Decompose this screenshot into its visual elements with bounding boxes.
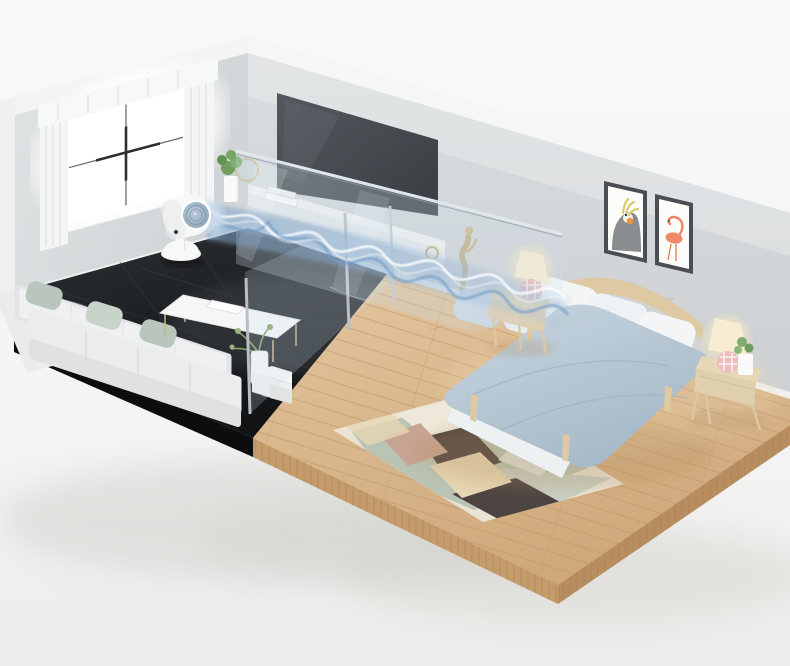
fan-power-button: [174, 230, 178, 234]
wall-art-flamingo: [655, 194, 693, 274]
scene-canvas: [0, 0, 790, 666]
room-cutaway-illustration: [0, 0, 790, 666]
wall-cut-edge: [0, 98, 15, 308]
wall-art-cockatiel: [604, 181, 647, 263]
